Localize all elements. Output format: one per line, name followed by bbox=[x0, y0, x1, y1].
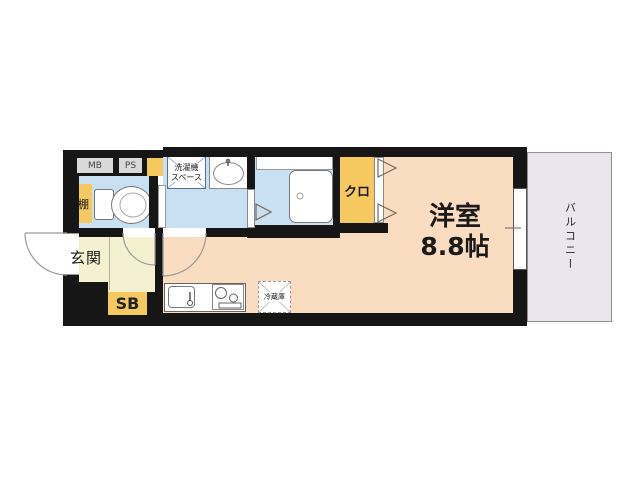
floor-plan: MB PS 棚 洗濯機 スペース クロ 玄関 SB 冷蔵庫 洋室 8.8帖 バル… bbox=[0, 0, 640, 480]
closet-door-arrow-top-icon bbox=[378, 159, 396, 177]
entrance-door-swing-arc bbox=[25, 233, 67, 275]
toilet-door-swing-arc bbox=[123, 233, 155, 265]
washroom-door-swing-arc bbox=[163, 233, 206, 276]
closet-door-arrow-bottom-icon bbox=[378, 204, 396, 222]
bathroom-door-arrow-icon bbox=[256, 204, 271, 220]
door-swing-layer bbox=[0, 0, 640, 480]
